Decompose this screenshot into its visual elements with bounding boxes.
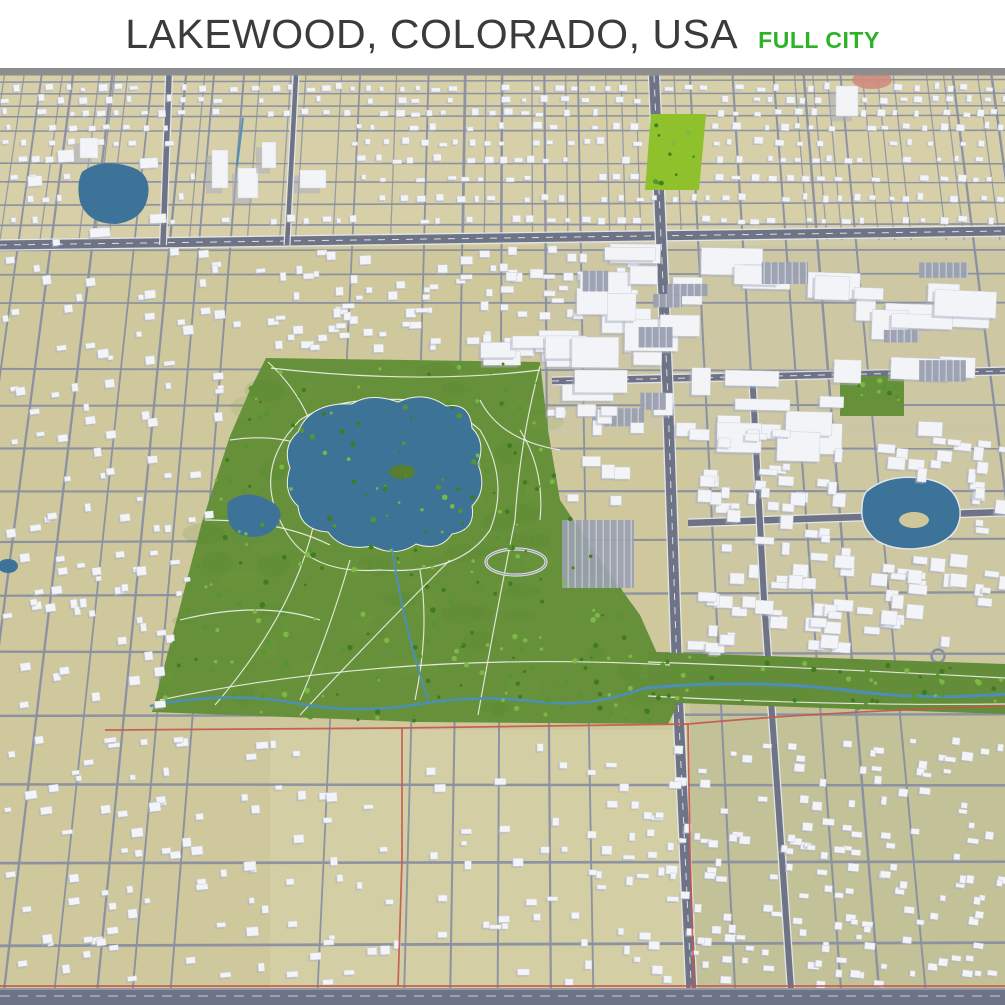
bottom-road — [0, 988, 1005, 1005]
page-title: LAKEWOOD, COLORADO, USA — [125, 0, 738, 68]
product-image: LAKEWOOD, COLORADO, USA FULL CITY — [0, 0, 1005, 1005]
header: LAKEWOOD, COLORADO, USA FULL CITY — [0, 0, 1005, 68]
city-3d-render — [0, 0, 1005, 1005]
coverage-badge: FULL CITY — [758, 27, 880, 54]
horizon-bar — [0, 68, 1005, 76]
